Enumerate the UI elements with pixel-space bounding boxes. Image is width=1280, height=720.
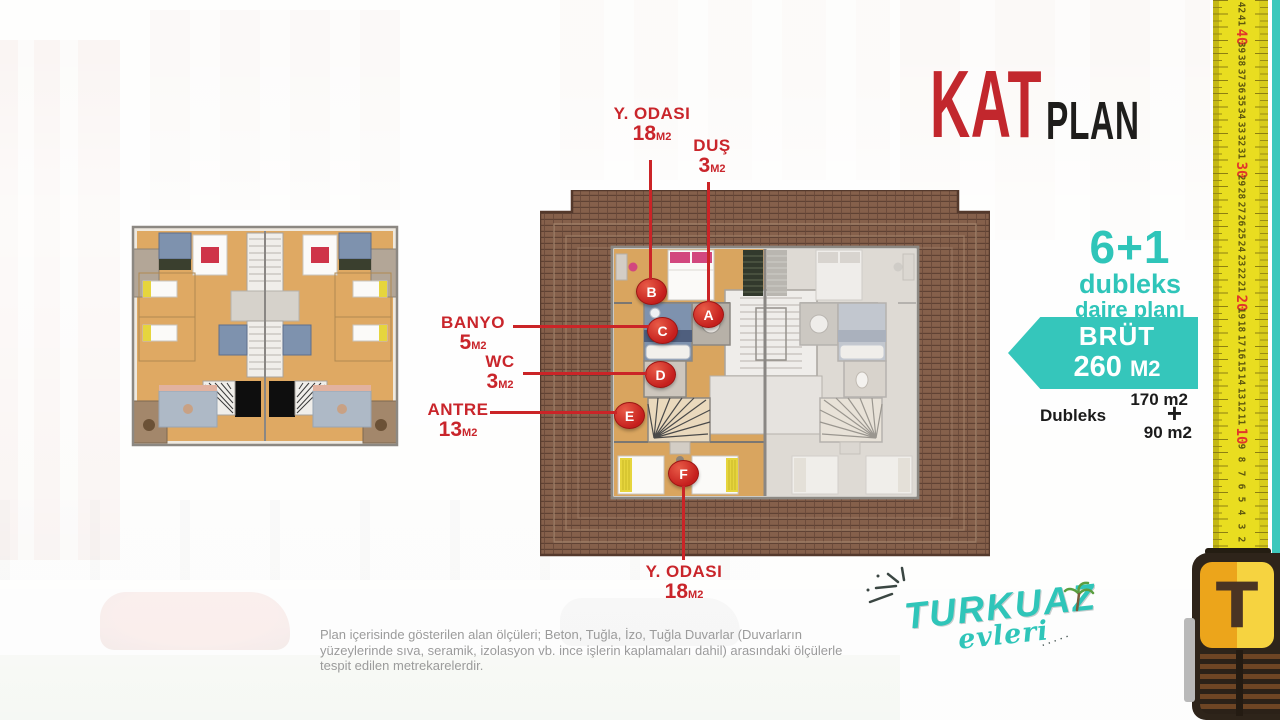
leader-line-bottom-bedroom bbox=[682, 486, 685, 560]
ruler-number: 25 bbox=[1235, 228, 1246, 239]
ruler-number: 10 bbox=[1233, 427, 1249, 444]
ruler-number: 36 bbox=[1235, 82, 1246, 93]
ruler-number: 15 bbox=[1235, 361, 1246, 372]
marker-c: C bbox=[647, 317, 678, 344]
leader-line-shower bbox=[707, 182, 710, 302]
ruler-number: 3 bbox=[1235, 523, 1246, 529]
ruler-number: 14 bbox=[1235, 374, 1246, 385]
room-area: 18 bbox=[665, 580, 688, 603]
tape-case-belt-clip bbox=[1184, 618, 1195, 702]
ruler-number: 18 bbox=[1235, 321, 1246, 332]
ruler-number: 12 bbox=[1235, 401, 1246, 412]
label-hall: ANTRE 13M2 bbox=[408, 400, 508, 444]
ruler-ticks-left-short bbox=[1213, 7, 1222, 557]
label-wc: WC 3M2 bbox=[450, 352, 550, 396]
room-name: DUŞ bbox=[662, 136, 762, 155]
background-red-car bbox=[100, 592, 290, 650]
ruler-number: 35 bbox=[1235, 95, 1246, 106]
ruler-number: 11 bbox=[1235, 414, 1246, 425]
marker-f: F bbox=[668, 460, 699, 487]
apartment-type: 6+1 dubleks daire planı bbox=[1040, 224, 1220, 322]
room-unit: M2 bbox=[462, 427, 477, 439]
ruler-number: 27 bbox=[1235, 201, 1246, 212]
ruler-number: 23 bbox=[1235, 254, 1246, 265]
room-unit: M2 bbox=[498, 379, 513, 391]
label-shower: DUŞ 3M2 bbox=[662, 136, 762, 180]
marker-e: E bbox=[614, 402, 645, 429]
ruler-number: 19 bbox=[1235, 308, 1246, 319]
ruler-number: 16 bbox=[1235, 348, 1246, 359]
room-area: 3 bbox=[699, 154, 711, 177]
marker-b: B bbox=[636, 278, 667, 305]
mini-floorplan-drawing bbox=[131, 225, 399, 447]
page-title: KAT PLAN bbox=[930, 66, 1190, 148]
ruler-number: 31 bbox=[1235, 148, 1246, 159]
room-unit: M2 bbox=[710, 163, 725, 175]
ruler-number: 2 bbox=[1235, 537, 1246, 543]
leader-line-top-bedroom bbox=[649, 160, 652, 280]
gross-area-arrow: BRÜT 260 M2 bbox=[1008, 317, 1198, 389]
ruler-number: 17 bbox=[1235, 334, 1246, 345]
measuring-tape-ruler: 4241403938373635343332313029282726252423… bbox=[1213, 0, 1268, 557]
ruler-number: 33 bbox=[1235, 121, 1246, 132]
ruler-ticks-right-short bbox=[1260, 7, 1268, 557]
ruler-number: 13 bbox=[1235, 387, 1246, 398]
room-name: Y. ODASI bbox=[604, 562, 764, 581]
gross-value: 260 bbox=[1073, 351, 1121, 383]
ruler-number: 8 bbox=[1235, 457, 1246, 463]
ruler-number: 21 bbox=[1235, 281, 1246, 292]
tape-case-rib-divider bbox=[1236, 650, 1243, 716]
ruler-number: 26 bbox=[1235, 215, 1246, 226]
marker-a: A bbox=[693, 301, 724, 328]
disclaimer-text: Plan içerisinde gösterilen alan ölçüleri… bbox=[320, 627, 865, 674]
ruler-number: 29 bbox=[1235, 175, 1246, 186]
ruler-number: 42 bbox=[1235, 2, 1246, 13]
main-floorplan-drawing bbox=[540, 190, 990, 560]
room-name: ANTRE bbox=[408, 400, 508, 419]
main-floorplan: A B C D E F bbox=[540, 190, 990, 560]
ruler-number: 34 bbox=[1235, 108, 1246, 119]
leader-line-hall bbox=[490, 411, 617, 414]
gross-unit: M2 bbox=[1130, 356, 1161, 381]
brand-logo: TURKUAZ evleri ····· bbox=[862, 560, 1112, 660]
background-building-mid bbox=[150, 10, 400, 210]
apartment-dubleks: dubleks bbox=[1040, 270, 1220, 298]
ruler-number: 24 bbox=[1235, 241, 1246, 252]
title-plan: PLAN bbox=[1046, 98, 1140, 144]
label-bottom-bedroom: Y. ODASI 18M2 bbox=[604, 562, 764, 606]
gross-label: BRÜT bbox=[1079, 321, 1155, 351]
tape-case-t-logo: T bbox=[1216, 569, 1258, 642]
area-type: Dubleks bbox=[1040, 406, 1106, 426]
leader-line-bathroom bbox=[513, 325, 649, 328]
room-name: BANYO bbox=[413, 313, 533, 332]
ruler-number: 9 bbox=[1235, 444, 1246, 450]
ruler-number: 4 bbox=[1235, 510, 1246, 516]
ruler-number: 32 bbox=[1235, 135, 1246, 146]
apartment-rooms: 6+1 bbox=[1040, 224, 1220, 270]
area-upper: 90 m2 bbox=[1144, 423, 1192, 443]
ruler-number: 22 bbox=[1235, 268, 1246, 279]
room-name: WC bbox=[450, 352, 550, 371]
label-bathroom: BANYO 5M2 bbox=[413, 313, 533, 357]
room-unit: M2 bbox=[471, 340, 486, 352]
room-area: 13 bbox=[439, 418, 462, 441]
title-kat: KAT bbox=[930, 66, 1042, 144]
room-area: 18 bbox=[633, 122, 656, 145]
ruler-number: 39 bbox=[1235, 42, 1246, 53]
mini-floorplan bbox=[131, 225, 399, 447]
room-unit: M2 bbox=[688, 589, 703, 601]
marker-d: D bbox=[645, 361, 676, 388]
ruler-number: 41 bbox=[1235, 15, 1246, 26]
ruler-number: 37 bbox=[1235, 68, 1246, 79]
area-breakdown: 170 m2 Dubleks + 90 m2 bbox=[1040, 390, 1192, 442]
ruler-number: 38 bbox=[1235, 55, 1246, 66]
room-area: 3 bbox=[487, 370, 499, 393]
ruler-number: 5 bbox=[1235, 497, 1246, 503]
room-area: 5 bbox=[460, 331, 472, 354]
teal-edge-strip bbox=[1270, 0, 1280, 557]
palm-tree-icon bbox=[1062, 578, 1096, 612]
ruler-number: 7 bbox=[1235, 470, 1246, 476]
ruler-number: 6 bbox=[1235, 483, 1246, 489]
background-building-left bbox=[0, 40, 120, 560]
room-name: Y. ODASI bbox=[572, 104, 732, 123]
tape-case-face: T bbox=[1200, 562, 1274, 648]
ruler-number: 28 bbox=[1235, 188, 1246, 199]
